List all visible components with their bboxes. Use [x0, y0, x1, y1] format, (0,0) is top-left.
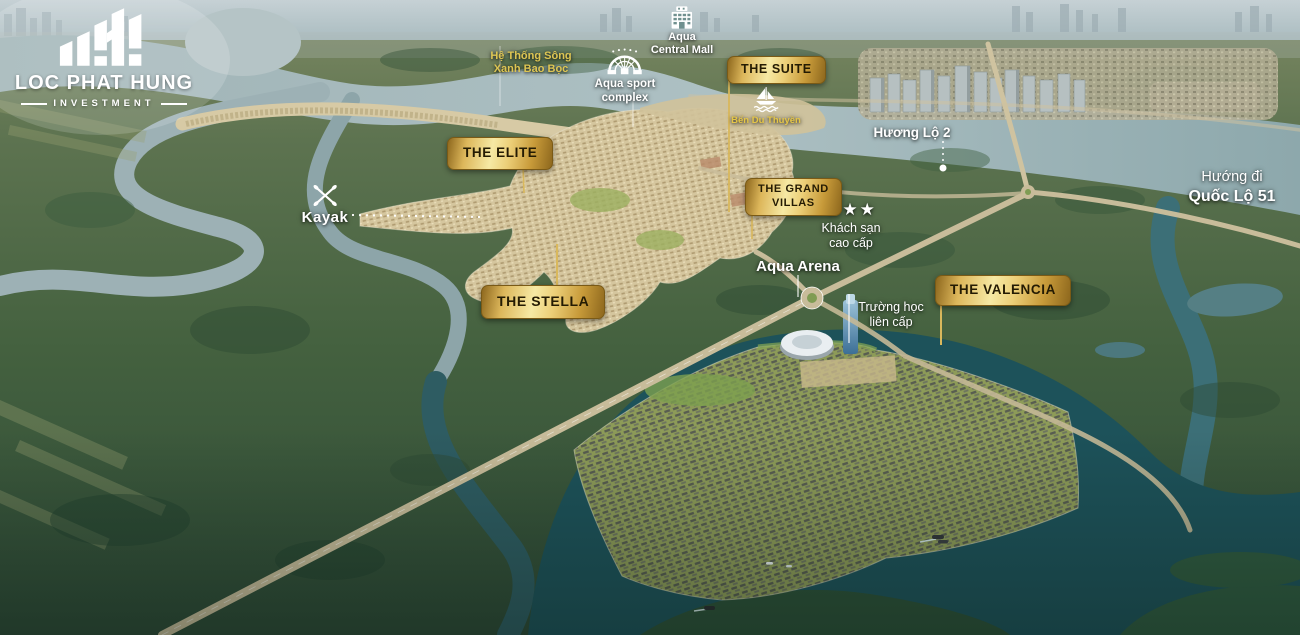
sailboat-icon [751, 86, 781, 113]
bar-chart-logo-mark [58, 6, 150, 68]
poi-aqua-central-mall: Aqua Central Mall [651, 6, 713, 58]
poi-school: Trường học liên cấp [858, 300, 923, 331]
kayak-paddles-icon [310, 184, 339, 207]
poi-aqua-sport-complex-line2: complex [595, 91, 656, 105]
company-subtitle-row: INVESTMENT [14, 98, 194, 109]
poi-aqua-sport-complex: Aqua sport complex [595, 48, 656, 105]
zone-badge-the-elite: THE ELITE [447, 137, 553, 170]
zone-badge-the-suite: THE SUITE [727, 56, 826, 84]
poi-river-system: Hệ Thống Sông Xanh Bao Bọc [490, 50, 571, 77]
company-logo: LOC PHAT HUNG INVESTMENT [14, 6, 194, 109]
poi-hotel-line1: Khách sạn [821, 221, 880, 236]
poi-marina: Bến Du Thuyền [731, 86, 801, 127]
road-label-quoc-lo-51: Hướng đi Quốc Lộ 51 [1188, 169, 1275, 206]
company-name: LOC PHAT HUNG [14, 72, 194, 95]
zone-badge-the-grand-villas-line2: VILLAS [758, 197, 829, 211]
poi-aqua-sport-complex-line1: Aqua sport [595, 77, 656, 91]
mall-building-icon [669, 6, 695, 29]
stadium-icon [606, 48, 644, 75]
road-label-quoc-lo-51-line1: Hướng đi [1188, 169, 1275, 187]
poi-kayak: Kayak [302, 184, 349, 227]
poi-school-line2: liên cấp [858, 315, 923, 330]
poi-river-system-line1: Hệ Thống Sông [490, 50, 571, 63]
poi-school-line1: Trường học [858, 300, 923, 315]
zone-badge-the-grand-villas-line1: THE GRAND [758, 183, 829, 197]
zone-badge-the-valencia: THE VALENCIA [935, 275, 1071, 306]
zone-badge-the-stella: THE STELLA [481, 285, 605, 319]
company-subtitle: INVESTMENT [53, 98, 154, 109]
poi-river-system-line2: Xanh Bao Bọc [490, 63, 571, 76]
poi-aqua-arena: Aqua Arena [756, 258, 840, 276]
poi-aqua-central-mall-line1: Aqua [651, 31, 713, 44]
poi-marina-label: Bến Du Thuyền [731, 115, 801, 127]
road-label-huong-lo-2: Hương Lộ 2 [873, 125, 950, 141]
poi-hotel-line2: cao cấp [821, 236, 880, 251]
poi-kayak-label: Kayak [302, 209, 349, 227]
masterplan-scene: LOC PHAT HUNG INVESTMENT Hệ Thống Sông X… [0, 0, 1300, 635]
subtitle-dash-right [161, 103, 187, 105]
poi-aqua-central-mall-line2: Central Mall [651, 44, 713, 57]
subtitle-dash-left [21, 103, 47, 105]
zone-badge-the-grand-villas: THE GRAND VILLAS [745, 178, 842, 216]
road-label-quoc-lo-51-line2: Quốc Lộ 51 [1188, 187, 1275, 207]
